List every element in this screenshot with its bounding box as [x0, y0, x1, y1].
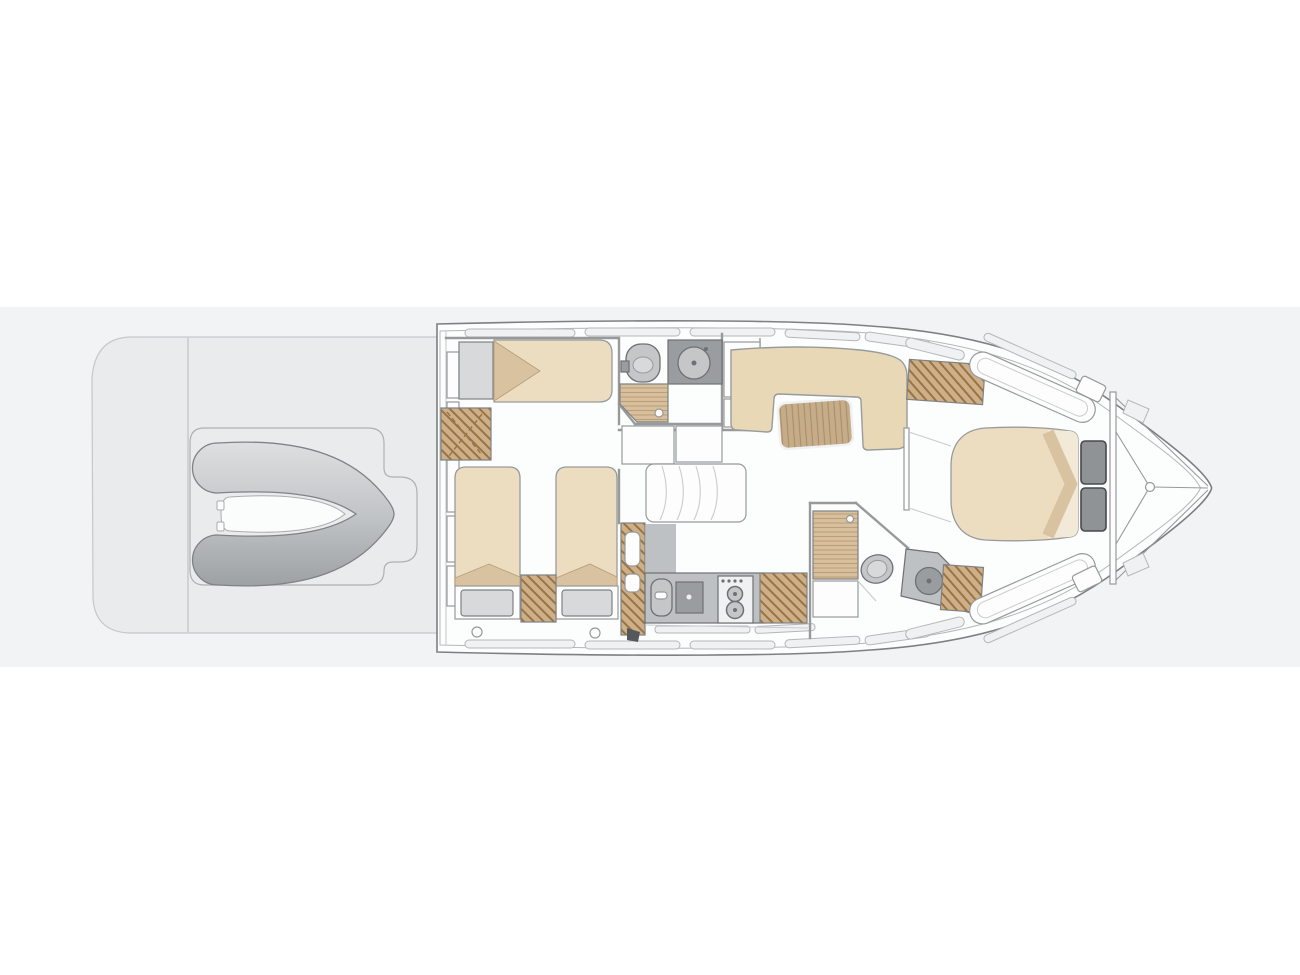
toilet-seat — [633, 357, 653, 373]
cooktop-knob — [733, 579, 736, 582]
cooktop-knob — [739, 579, 742, 582]
collision-bulkhead — [1110, 392, 1116, 584]
toilet-flush — [621, 361, 629, 372]
windlass — [1146, 483, 1155, 492]
deck-filler-cap — [590, 628, 600, 638]
shower-drain — [655, 409, 663, 417]
shower-drain — [847, 516, 854, 523]
deck-hatch — [465, 640, 575, 648]
galley-faucet — [655, 592, 667, 599]
twin-bed-2-pillow — [562, 590, 612, 616]
entry-wall — [904, 428, 909, 510]
sink-drain — [692, 361, 697, 366]
burner-center — [733, 592, 737, 596]
cooktop-knob — [721, 579, 724, 582]
deck-hatch — [585, 328, 680, 336]
sink-drain — [927, 579, 932, 584]
yacht-deck-plan — [0, 0, 1300, 975]
tender-step — [217, 501, 224, 510]
deck-hatch — [690, 328, 775, 336]
faucet — [704, 347, 708, 351]
cabinet-inset — [625, 574, 640, 592]
deck-hatch — [690, 641, 775, 649]
nightstand — [521, 575, 556, 622]
headboard-pillow — [1081, 441, 1106, 484]
galley-worktop — [760, 573, 807, 623]
headboard-pillow — [1081, 488, 1106, 531]
deck-hatch — [585, 641, 680, 649]
deck-plan-page — [0, 0, 1300, 975]
berth-headrest-cabinet — [459, 342, 493, 399]
transom-locker — [447, 352, 459, 398]
twin-bed-1-pillow — [461, 590, 513, 616]
dinette-table — [777, 398, 853, 449]
shower-bench — [813, 581, 858, 617]
module-knob — [687, 595, 692, 600]
stair-well — [646, 464, 746, 522]
tender-step — [217, 522, 224, 531]
burner-center — [733, 608, 737, 612]
deck-hatch — [465, 329, 575, 337]
galley — [645, 573, 808, 628]
deck-filler-cap — [472, 627, 482, 637]
cabinet-inset — [625, 532, 640, 566]
cooktop-knob — [727, 579, 730, 582]
stair-landing — [646, 524, 676, 574]
cabinet — [622, 426, 674, 464]
cabinet — [676, 426, 722, 462]
